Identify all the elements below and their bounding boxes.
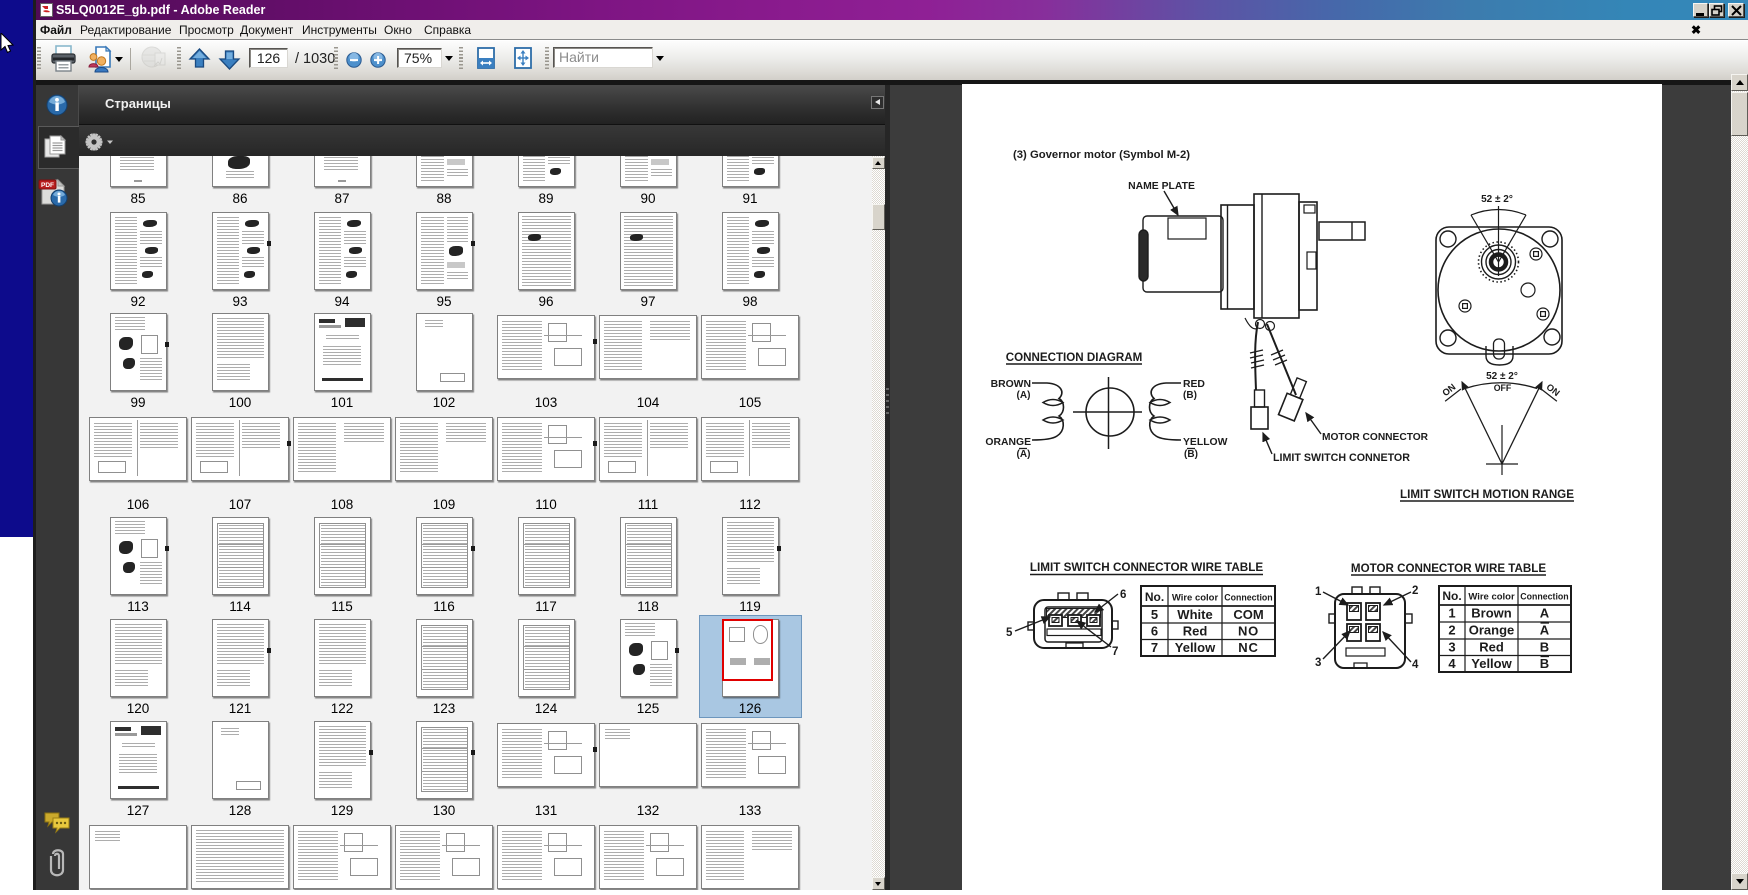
svg-text:ON: ON <box>1440 382 1457 399</box>
svg-text:1: 1 <box>1448 606 1455 621</box>
svg-text:No.: No. <box>1145 590 1164 604</box>
svg-text:A: A <box>1540 623 1550 638</box>
svg-text:52 ± 2°: 52 ± 2° <box>1486 371 1518 382</box>
svg-text:2: 2 <box>1412 585 1418 597</box>
svg-text:4: 4 <box>1448 656 1456 671</box>
svg-text:ORANGE: ORANGE <box>985 437 1031 448</box>
svg-text:(A): (A) <box>1017 449 1031 460</box>
svg-text:3: 3 <box>1448 640 1455 655</box>
svg-text:RED: RED <box>1183 379 1205 390</box>
svg-text:No.: No. <box>1442 589 1461 603</box>
svg-text:7: 7 <box>1151 640 1158 655</box>
svg-text:White: White <box>1177 607 1212 622</box>
svg-text:Yellow: Yellow <box>1175 640 1216 655</box>
svg-text:Wire color: Wire color <box>1172 593 1219 604</box>
svg-text:Brown: Brown <box>1471 606 1512 621</box>
svg-text:PDF: PDF <box>41 182 54 189</box>
svg-text:LIMIT SWITCH CONNECTOR WIRE TA: LIMIT SWITCH CONNECTOR WIRE TABLE <box>1030 561 1264 574</box>
svg-text:B: B <box>1540 656 1549 671</box>
svg-text:MOTOR CONNECTOR WIRE TABLE: MOTOR CONNECTOR WIRE TABLE <box>1351 562 1546 575</box>
svg-text:Red: Red <box>1479 640 1504 655</box>
svg-text:5: 5 <box>1151 607 1158 622</box>
svg-text:NO: NO <box>1238 624 1259 639</box>
svg-text:B: B <box>1540 640 1549 655</box>
svg-text:(B): (B) <box>1184 449 1198 460</box>
svg-text:Connection: Connection <box>1224 593 1272 603</box>
svg-text:COM: COM <box>1233 607 1263 622</box>
svg-text:Red: Red <box>1183 624 1208 639</box>
svg-text:MOTOR CONNECTOR: MOTOR CONNECTOR <box>1322 432 1429 443</box>
svg-text:CONNECTION DIAGRAM: CONNECTION DIAGRAM <box>1006 351 1143 364</box>
svg-text:(3) Governor motor (Symbol M-2: (3) Governor motor (Symbol M-2) <box>1013 149 1190 161</box>
svg-text:1: 1 <box>1315 586 1322 598</box>
svg-text:Wire color: Wire color <box>1468 592 1515 603</box>
svg-text:7: 7 <box>1112 646 1118 658</box>
svg-text:52 ± 2°: 52 ± 2° <box>1481 194 1513 205</box>
svg-text:2: 2 <box>1448 623 1455 638</box>
svg-text:ON: ON <box>1544 382 1561 399</box>
svg-text:A: A <box>1540 606 1550 621</box>
svg-text:YELLOW: YELLOW <box>1183 437 1228 448</box>
svg-text:BROWN: BROWN <box>991 379 1031 390</box>
svg-text:NC: NC <box>1238 640 1258 655</box>
svg-text:Connection: Connection <box>1520 592 1568 602</box>
svg-text:LIMIT SWITCH CONNETOR: LIMIT SWITCH CONNETOR <box>1273 452 1410 464</box>
svg-text:6: 6 <box>1120 589 1126 601</box>
svg-text:(B): (B) <box>1183 390 1197 401</box>
svg-text:OFF: OFF <box>1494 383 1512 393</box>
svg-text:LIMIT SWITCH MOTION RANGE: LIMIT SWITCH MOTION RANGE <box>1400 488 1574 501</box>
svg-text:4: 4 <box>1412 659 1419 671</box>
svg-text:3: 3 <box>1315 657 1321 669</box>
svg-text:NAME PLATE: NAME PLATE <box>1128 181 1195 192</box>
svg-text:Yellow: Yellow <box>1471 656 1512 671</box>
svg-text:6: 6 <box>1151 624 1158 639</box>
svg-text:(A): (A) <box>1017 390 1031 401</box>
svg-text:Orange: Orange <box>1469 623 1515 638</box>
svg-text:5: 5 <box>1006 627 1013 639</box>
